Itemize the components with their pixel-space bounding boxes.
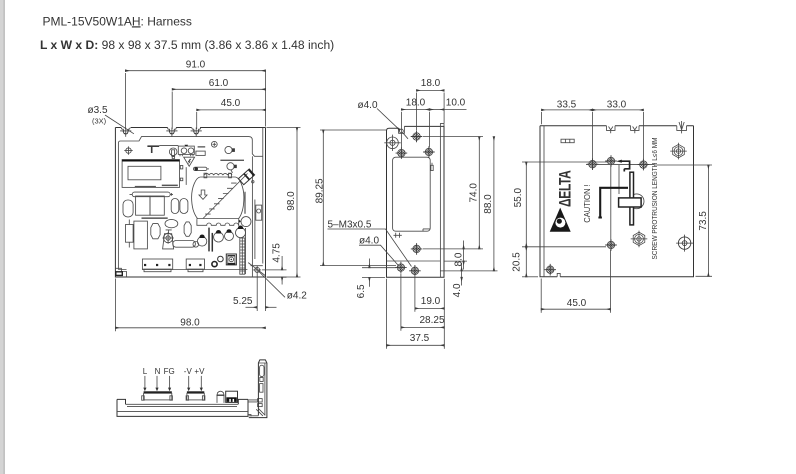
svg-text:4.75: 4.75: [271, 243, 282, 263]
svg-text:45.0: 45.0: [221, 98, 241, 109]
svg-text:28.25: 28.25: [419, 315, 444, 326]
svg-text:73.5: 73.5: [698, 211, 709, 231]
svg-text:PML-15V50W1AH: Harness: PML-15V50W1AH: Harness: [43, 14, 192, 28]
svg-text:18.0: 18.0: [406, 97, 426, 108]
svg-text:10.0: 10.0: [446, 97, 466, 108]
svg-text:6.5: 6.5: [356, 284, 367, 298]
svg-text:+V: +V: [194, 367, 205, 376]
svg-text:74.0: 74.0: [469, 183, 480, 203]
svg-text:91.0: 91.0: [186, 59, 206, 70]
svg-text:5.25: 5.25: [233, 296, 253, 307]
svg-text:8.0: 8.0: [453, 252, 464, 266]
svg-text:19.0: 19.0: [421, 296, 441, 307]
svg-text:37.5: 37.5: [410, 333, 430, 344]
svg-text:98.0: 98.0: [180, 318, 200, 329]
svg-text:L: L: [143, 367, 148, 376]
svg-text:98.0: 98.0: [286, 191, 297, 211]
svg-text:SCREW PROTRUSION LENGTH L≤6 MM: SCREW PROTRUSION LENGTH L≤6 MM: [651, 137, 659, 259]
svg-text:ø4.0: ø4.0: [358, 100, 378, 111]
svg-text:(3X): (3X): [92, 117, 107, 126]
svg-text:ø3.5: ø3.5: [88, 105, 108, 116]
svg-text:-V: -V: [184, 367, 193, 376]
svg-text:33.5: 33.5: [557, 99, 577, 110]
svg-text:61.0: 61.0: [209, 78, 229, 89]
svg-text:N: N: [155, 367, 161, 376]
svg-text:88.0: 88.0: [483, 194, 494, 214]
svg-text:ø4.2: ø4.2: [287, 291, 307, 302]
svg-text:18.0: 18.0: [421, 78, 441, 89]
svg-text:20.5: 20.5: [512, 252, 523, 272]
svg-text:4.0: 4.0: [452, 283, 463, 297]
svg-text:55.0: 55.0: [513, 188, 524, 208]
svg-text:ΔELTA: ΔELTA: [557, 170, 575, 207]
svg-text:45.0: 45.0: [567, 298, 587, 309]
svg-text:FG: FG: [164, 367, 175, 376]
svg-text:33.0: 33.0: [607, 99, 627, 110]
svg-text:CAUTION !: CAUTION !: [582, 184, 592, 223]
svg-text:L x W x D: 98 x 98 x 37.5 mm (: L x W x D: 98 x 98 x 37.5 mm (3.86 x 3.8…: [40, 38, 334, 52]
